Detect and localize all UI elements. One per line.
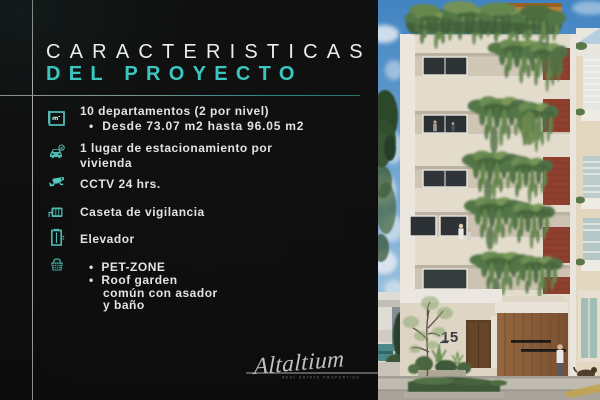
svg-text:REAL ESTATE PROPERTIES: REAL ESTATE PROPERTIES (282, 376, 360, 380)
